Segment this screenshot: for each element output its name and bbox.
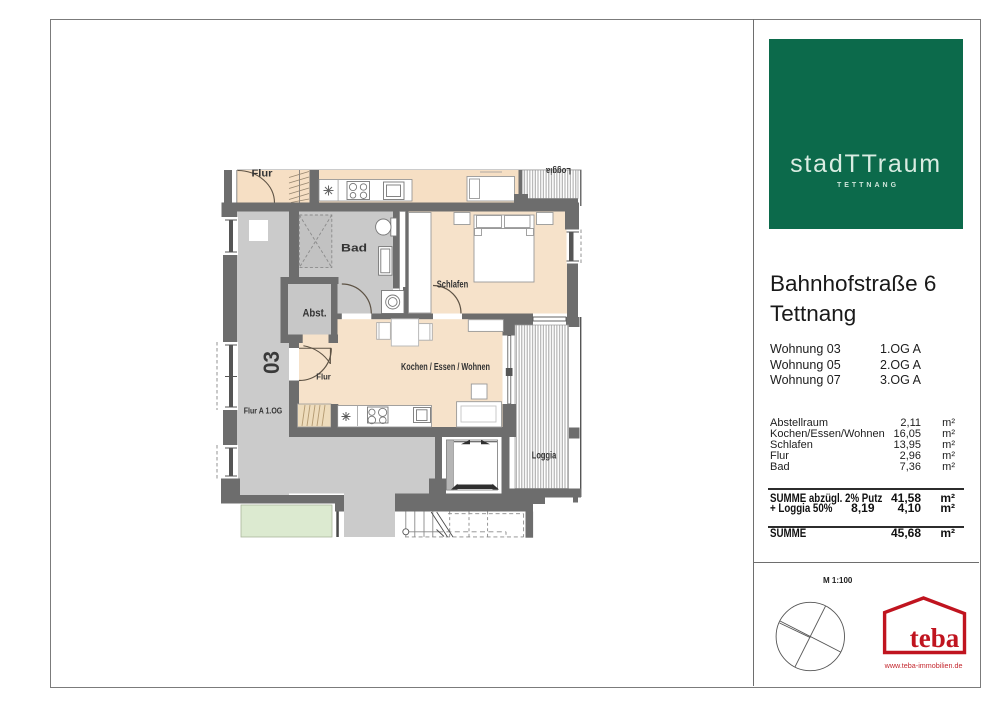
svg-text:Loggia: Loggia: [545, 166, 571, 176]
svg-text:03: 03: [259, 351, 284, 374]
svg-text:Kochen / Essen / Wohnen: Kochen / Essen / Wohnen: [401, 362, 490, 373]
svg-text:teba: teba: [910, 623, 960, 653]
svg-text:Schlafen: Schlafen: [437, 280, 469, 291]
svg-text:Bad: Bad: [341, 243, 367, 255]
svg-text:Flur A 1.OG: Flur A 1.OG: [244, 406, 283, 416]
svg-text:Flur: Flur: [252, 168, 273, 180]
svg-text:www.teba-immobilien.de: www.teba-immobilien.de: [884, 661, 963, 670]
svg-text:Abst.: Abst.: [303, 308, 327, 320]
svg-text:Loggia: Loggia: [532, 451, 557, 462]
svg-text:Flur: Flur: [316, 373, 331, 382]
